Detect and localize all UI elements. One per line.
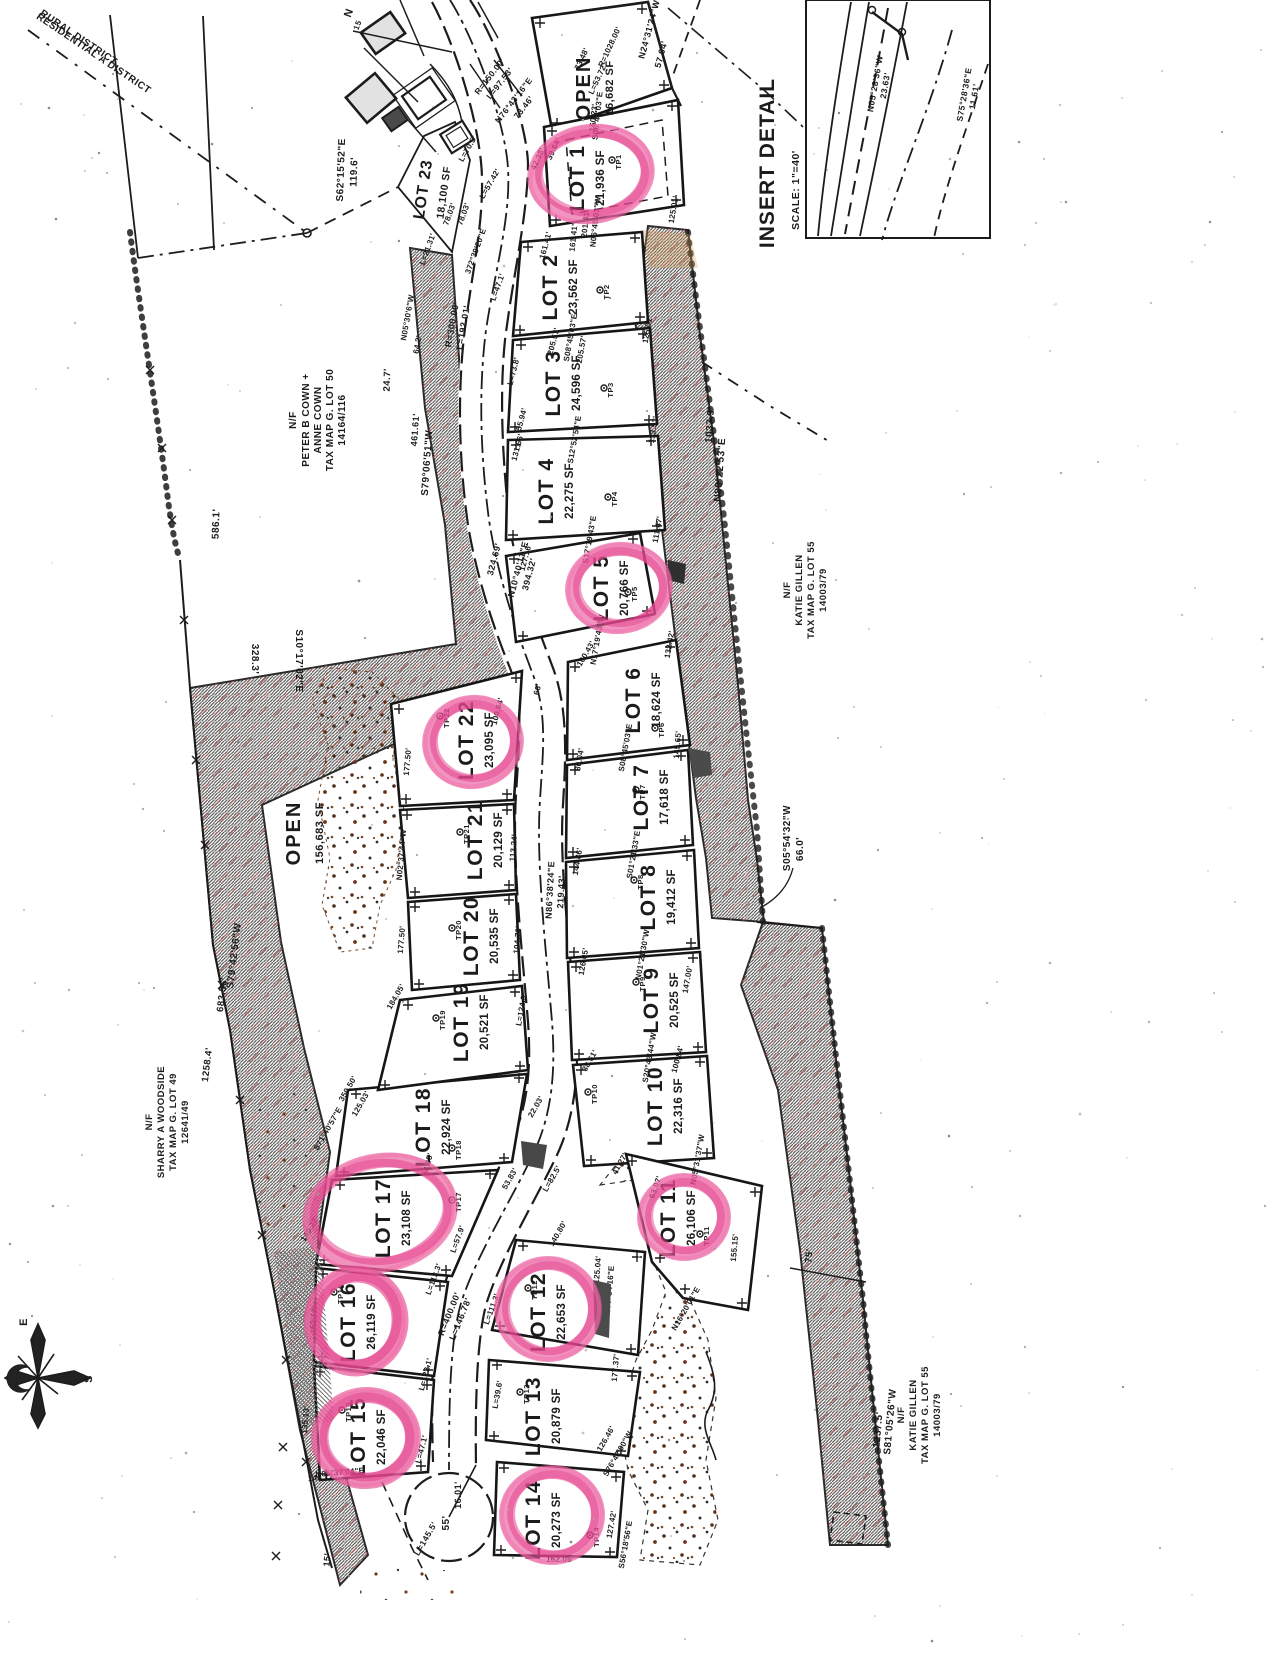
svg-text:ANNE COWN: ANNE COWN: [313, 386, 324, 453]
svg-text:TP19: TP19: [438, 1010, 447, 1030]
svg-text:LOT 19: LOT 19: [450, 982, 473, 1062]
svg-text:E: E: [18, 1318, 30, 1326]
svg-text:22,653 SF: 22,653 SF: [556, 1284, 568, 1340]
svg-text:TP6: TP6: [657, 722, 666, 737]
svg-text:TP13: TP13: [522, 1384, 531, 1404]
svg-text:586.1': 586.1': [210, 509, 222, 540]
svg-text:TP9: TP9: [638, 976, 647, 991]
svg-text:26,119 SF: 26,119 SF: [366, 1294, 378, 1349]
svg-text:16.01': 16.01': [453, 1481, 463, 1509]
svg-text:18,624 SF: 18,624 SF: [651, 672, 663, 728]
svg-text:156,683 SF: 156,683 SF: [314, 802, 326, 864]
svg-text:328.3': 328.3': [249, 644, 260, 674]
svg-text:55': 55': [441, 1515, 452, 1530]
svg-text:S10°17'02"E: S10°17'02"E: [293, 629, 304, 692]
svg-text:23,108 SF: 23,108 SF: [401, 1190, 413, 1246]
svg-text:TP7: TP7: [638, 784, 647, 799]
svg-text:KATIE GILLEN: KATIE GILLEN: [908, 1379, 919, 1450]
svg-text:SCALE: 1"=40': SCALE: 1"=40': [790, 150, 802, 230]
svg-text:TP3: TP3: [606, 382, 615, 397]
svg-text:TP4: TP4: [610, 491, 619, 507]
svg-text:TP20: TP20: [454, 920, 463, 940]
svg-text:22,046 SF: 22,046 SF: [376, 1409, 388, 1465]
svg-text:LOT 2: LOT 2: [539, 253, 562, 320]
svg-text:TAX MAP G. LOT 55: TAX MAP G. LOT 55: [920, 1366, 931, 1464]
svg-text:INSERT DETAIL: INSERT DETAIL: [756, 78, 779, 248]
svg-text:S05°54'32"W: S05°54'32"W: [782, 805, 793, 871]
svg-text:17,618 SF: 17,618 SF: [659, 769, 671, 825]
svg-text:TP18: TP18: [454, 1140, 463, 1160]
svg-text:219.43': 219.43': [555, 875, 567, 909]
svg-text:N/F: N/F: [896, 1407, 907, 1424]
svg-text:14003/79: 14003/79: [818, 568, 829, 612]
svg-text:20,535 SF: 20,535 SF: [489, 908, 501, 964]
svg-text:12641/49: 12641/49: [180, 1100, 191, 1144]
svg-text:SHARRY A WOODSIDE: SHARRY A WOODSIDE: [156, 1066, 167, 1178]
svg-text:26,106 SF: 26,106 SF: [686, 1190, 698, 1246]
svg-text:LOT 4: LOT 4: [535, 457, 558, 524]
svg-text:TP5: TP5: [630, 586, 639, 601]
svg-text:20,879 SF: 20,879 SF: [551, 1388, 563, 1444]
svg-text:20,525 SF: 20,525 SF: [669, 972, 681, 1028]
svg-text:N/F: N/F: [144, 1114, 155, 1131]
svg-text:OPEN: OPEN: [283, 801, 305, 866]
svg-text:TP12: TP12: [530, 1280, 539, 1300]
svg-text:22,924 SF: 22,924 SF: [441, 1099, 453, 1155]
svg-text:20,273 SF: 20,273 SF: [551, 1492, 563, 1548]
svg-text:22,275 SF: 22,275 SF: [564, 463, 576, 519]
svg-text:15': 15': [321, 1553, 332, 1567]
svg-text:22,316 SF: 22,316 SF: [673, 1078, 685, 1134]
svg-text:66.0': 66.0': [795, 837, 806, 861]
svg-text:TAX MAP G. LOT 55: TAX MAP G. LOT 55: [806, 541, 817, 639]
svg-text:PETER B COWN +: PETER B COWN +: [301, 373, 312, 466]
svg-text:LOT 20: LOT 20: [460, 896, 483, 976]
svg-text:S62°15'52"E: S62°15'52"E: [335, 138, 348, 202]
svg-text:N/F: N/F: [782, 582, 793, 599]
svg-text:TP21: TP21: [462, 824, 471, 844]
svg-text:23,562 SF: 23,562 SF: [568, 259, 580, 315]
svg-text:TAX MAP G. LOT 50: TAX MAP G. LOT 50: [325, 369, 336, 472]
svg-text:TP1: TP1: [614, 154, 623, 169]
svg-text:KATIE GILLEN: KATIE GILLEN: [794, 554, 805, 625]
svg-text:19,412 SF: 19,412 SF: [666, 869, 678, 925]
svg-text:TP10: TP10: [590, 1084, 599, 1104]
svg-text:24.7': 24.7': [382, 368, 394, 392]
svg-text:TP8: TP8: [636, 874, 645, 889]
svg-text:119.6': 119.6': [348, 157, 360, 187]
svg-text:14003/79: 14003/79: [932, 1393, 943, 1437]
svg-text:TAX MAP G. LOT 49: TAX MAP G. LOT 49: [168, 1073, 179, 1171]
svg-text:20,129 SF: 20,129 SF: [493, 812, 505, 868]
svg-text:75': 75': [803, 1248, 815, 1263]
svg-text:LOT 8: LOT 8: [637, 863, 660, 930]
svg-text:14164/116: 14164/116: [337, 394, 348, 445]
svg-text:S: S: [83, 1375, 95, 1383]
svg-text:LOT 17: LOT 17: [372, 1178, 395, 1258]
svg-text:20,521 SF: 20,521 SF: [479, 994, 491, 1050]
svg-text:N/F: N/F: [288, 411, 299, 429]
